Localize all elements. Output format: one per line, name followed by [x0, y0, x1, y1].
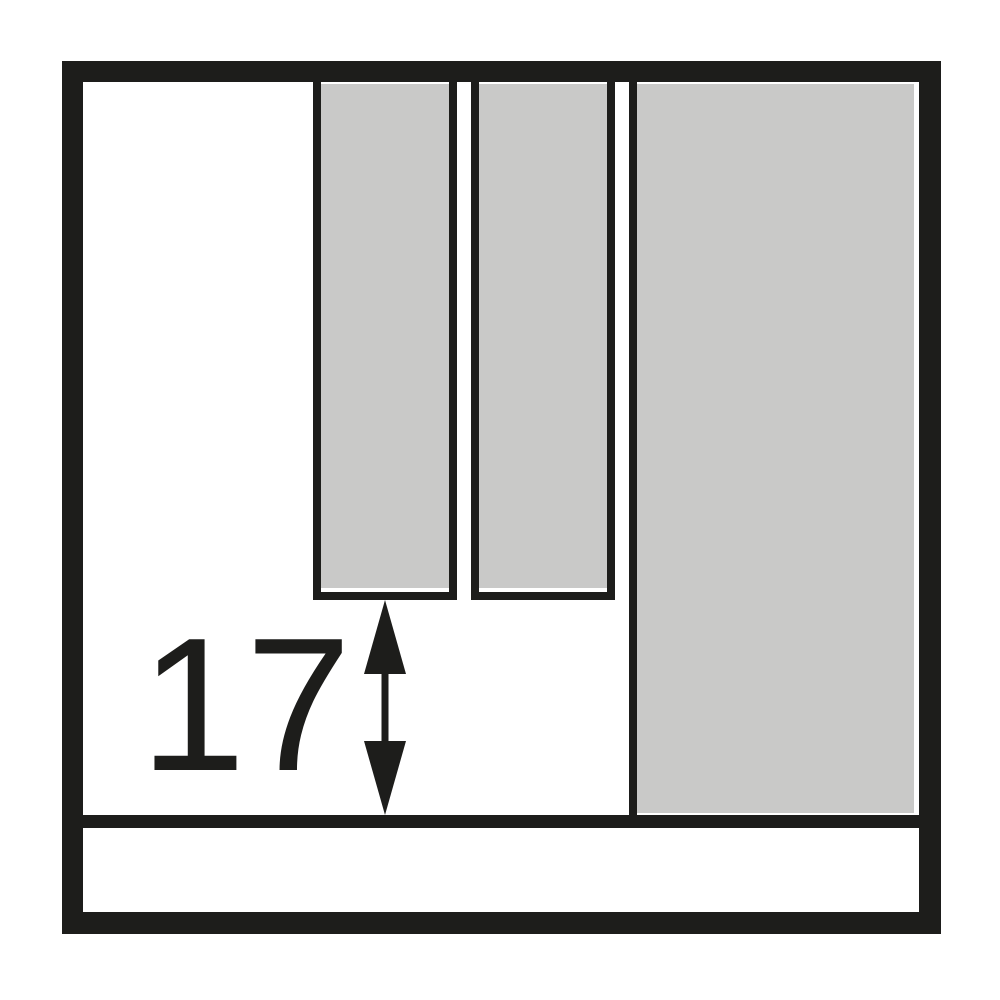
svg-text:17: 17	[140, 599, 351, 811]
